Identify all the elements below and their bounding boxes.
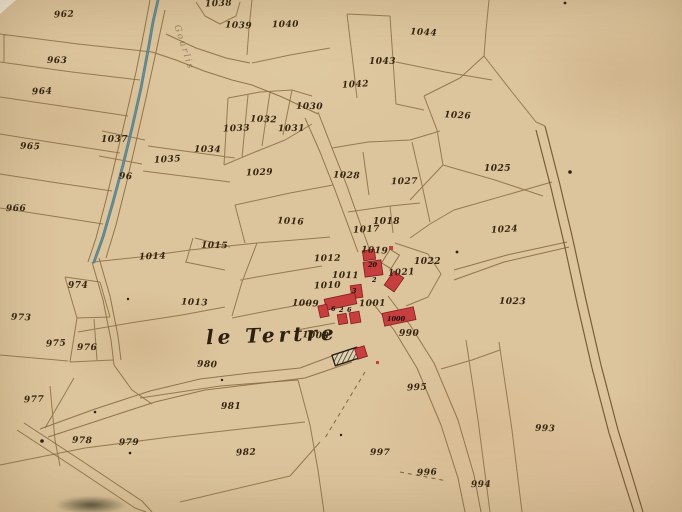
parcel-number-1032: 1032 bbox=[250, 116, 277, 126]
parcel-number-1035: 1035 bbox=[154, 155, 181, 165]
parcel-number-966: 966 bbox=[6, 205, 26, 214]
parcel-number-1044: 1044 bbox=[410, 28, 437, 38]
parcel-number-965: 965 bbox=[20, 143, 41, 153]
parcel-number-1030: 1030 bbox=[296, 103, 323, 112]
parcel-number-980: 980 bbox=[197, 360, 218, 370]
building-number-3: 3 bbox=[352, 288, 357, 295]
parcel-number-995: 995 bbox=[407, 383, 428, 393]
building-number-1000: 1000 bbox=[387, 316, 405, 323]
parcel-number-1029: 1029 bbox=[246, 169, 273, 179]
parcel-number-1028: 1028 bbox=[333, 172, 360, 182]
parcel-number-997: 997 bbox=[370, 449, 390, 458]
parcel-number-1016: 1016 bbox=[277, 217, 304, 227]
parcel-number-977: 977 bbox=[24, 396, 45, 406]
parcel-number-1037: 1037 bbox=[101, 136, 128, 145]
parcel-number-1023: 1023 bbox=[499, 298, 526, 307]
parcel-number-963: 963 bbox=[47, 57, 67, 66]
parcel-number-1015: 1015 bbox=[201, 242, 228, 251]
parcel-number-1025: 1025 bbox=[484, 165, 511, 174]
watercourse-label: Gourlis bbox=[171, 24, 194, 72]
parcel-number-981: 981 bbox=[221, 403, 241, 412]
parcel-number-1014: 1014 bbox=[139, 253, 166, 263]
parcel-number-982: 982 bbox=[236, 448, 257, 458]
parcel-number-964: 964 bbox=[32, 88, 53, 98]
parcel-number-1031: 1031 bbox=[278, 125, 305, 134]
parcel-number-1040: 1040 bbox=[272, 21, 299, 30]
building-number-6: 6 bbox=[331, 306, 336, 313]
parcel-number-996: 996 bbox=[417, 469, 438, 479]
parcel-number-974: 974 bbox=[68, 282, 88, 291]
paper-corner-artifact bbox=[0, 0, 16, 14]
ink-smudge bbox=[56, 496, 126, 512]
parcel-number-1013: 1013 bbox=[181, 299, 208, 309]
labels-layer: le Tertre Gourlis 9629639649659669610371… bbox=[0, 0, 682, 512]
parcel-number-990: 990 bbox=[399, 330, 419, 339]
parcel-number-1043: 1043 bbox=[369, 58, 396, 67]
building-number-2: 2 bbox=[339, 307, 344, 314]
cadastral-map: le Tertre Gourlis 9629639649659669610371… bbox=[0, 0, 682, 512]
parcel-number-1009: 1009 bbox=[292, 300, 319, 310]
parcel-number-1027: 1027 bbox=[391, 178, 418, 187]
parcel-number-1038: 1038 bbox=[205, 0, 232, 9]
parcel-number-973: 973 bbox=[11, 313, 32, 323]
parcel-number-979: 979 bbox=[119, 439, 139, 448]
building-number-2: 2 bbox=[372, 277, 377, 284]
parcel-number-1042: 1042 bbox=[342, 80, 369, 90]
parcel-number-1001: 1001 bbox=[359, 300, 386, 309]
parcel-number-1012: 1012 bbox=[314, 255, 341, 264]
building-number-20: 20 bbox=[368, 262, 377, 269]
parcel-number-994: 994 bbox=[471, 481, 491, 490]
parcel-number-975: 975 bbox=[46, 339, 67, 349]
parcel-number-1021: 1021 bbox=[388, 268, 415, 278]
parcel-number-993: 993 bbox=[535, 425, 556, 435]
parcel-number-1026: 1026 bbox=[444, 111, 471, 121]
parcel-number-1008: 1008 bbox=[302, 331, 329, 341]
parcel-number-962: 962 bbox=[54, 10, 75, 20]
parcel-number-1022: 1022 bbox=[414, 258, 441, 267]
parcel-number-978: 978 bbox=[72, 437, 93, 447]
parcel-number-976: 976 bbox=[77, 344, 97, 353]
parcel-number-1039: 1039 bbox=[225, 22, 252, 32]
parcel-number-96: 96 bbox=[119, 173, 133, 183]
parcel-number-1017: 1017 bbox=[353, 225, 380, 235]
parcel-number-1010: 1010 bbox=[314, 282, 341, 292]
parcel-number-1033: 1033 bbox=[223, 125, 250, 135]
parcel-number-1034: 1034 bbox=[194, 146, 221, 155]
parcel-number-1024: 1024 bbox=[491, 225, 518, 235]
parcel-number-1019: 1019 bbox=[361, 246, 388, 256]
building-number-6: 6 bbox=[347, 307, 352, 314]
